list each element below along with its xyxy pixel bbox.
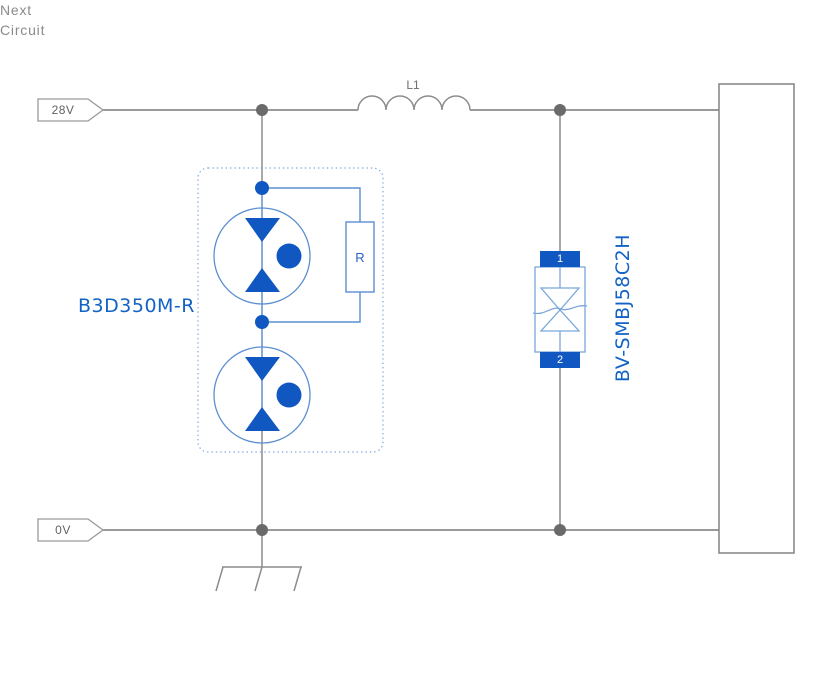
surge-module-label: B3D350M-R xyxy=(40,293,195,319)
next-circuit-block xyxy=(719,84,794,553)
junction-bottom-right xyxy=(554,524,566,536)
schematic-graphics xyxy=(0,0,832,675)
tvs-diode-label: BV-SMBJ58C2H xyxy=(610,223,636,393)
resistor-label: R xyxy=(346,222,374,292)
inductor-icon xyxy=(358,96,470,110)
tvs-pin1-label: 1 xyxy=(540,251,580,267)
rail-label-28v: 28V xyxy=(38,99,88,121)
gdt2-dot-icon xyxy=(277,383,302,408)
circuit-diagram: 28V 0V L1 R 1 2 B3D350M-R BV-SMBJ58C2H N… xyxy=(0,0,832,675)
rail-label-0v: 0V xyxy=(38,519,88,541)
junction-bottom-left xyxy=(256,524,268,536)
gdt2-triangle-up-icon xyxy=(245,407,280,431)
gdt2-triangle-down-icon xyxy=(245,357,280,381)
gdt1-triangle-up-icon xyxy=(245,268,280,292)
surge-module-boundary xyxy=(198,168,383,452)
gdt1-triangle-down-icon xyxy=(245,218,280,242)
tvs-symbol xyxy=(533,251,587,368)
module-junction-top xyxy=(255,181,269,195)
junction-top-right xyxy=(554,104,566,116)
junction-top-left xyxy=(256,104,268,116)
module-junction-mid xyxy=(255,315,269,329)
tvs-pin2-label: 2 xyxy=(540,352,580,368)
inductor-label: L1 xyxy=(391,77,435,93)
ground-icon xyxy=(216,567,302,591)
gdt1-dot-icon xyxy=(277,244,302,269)
